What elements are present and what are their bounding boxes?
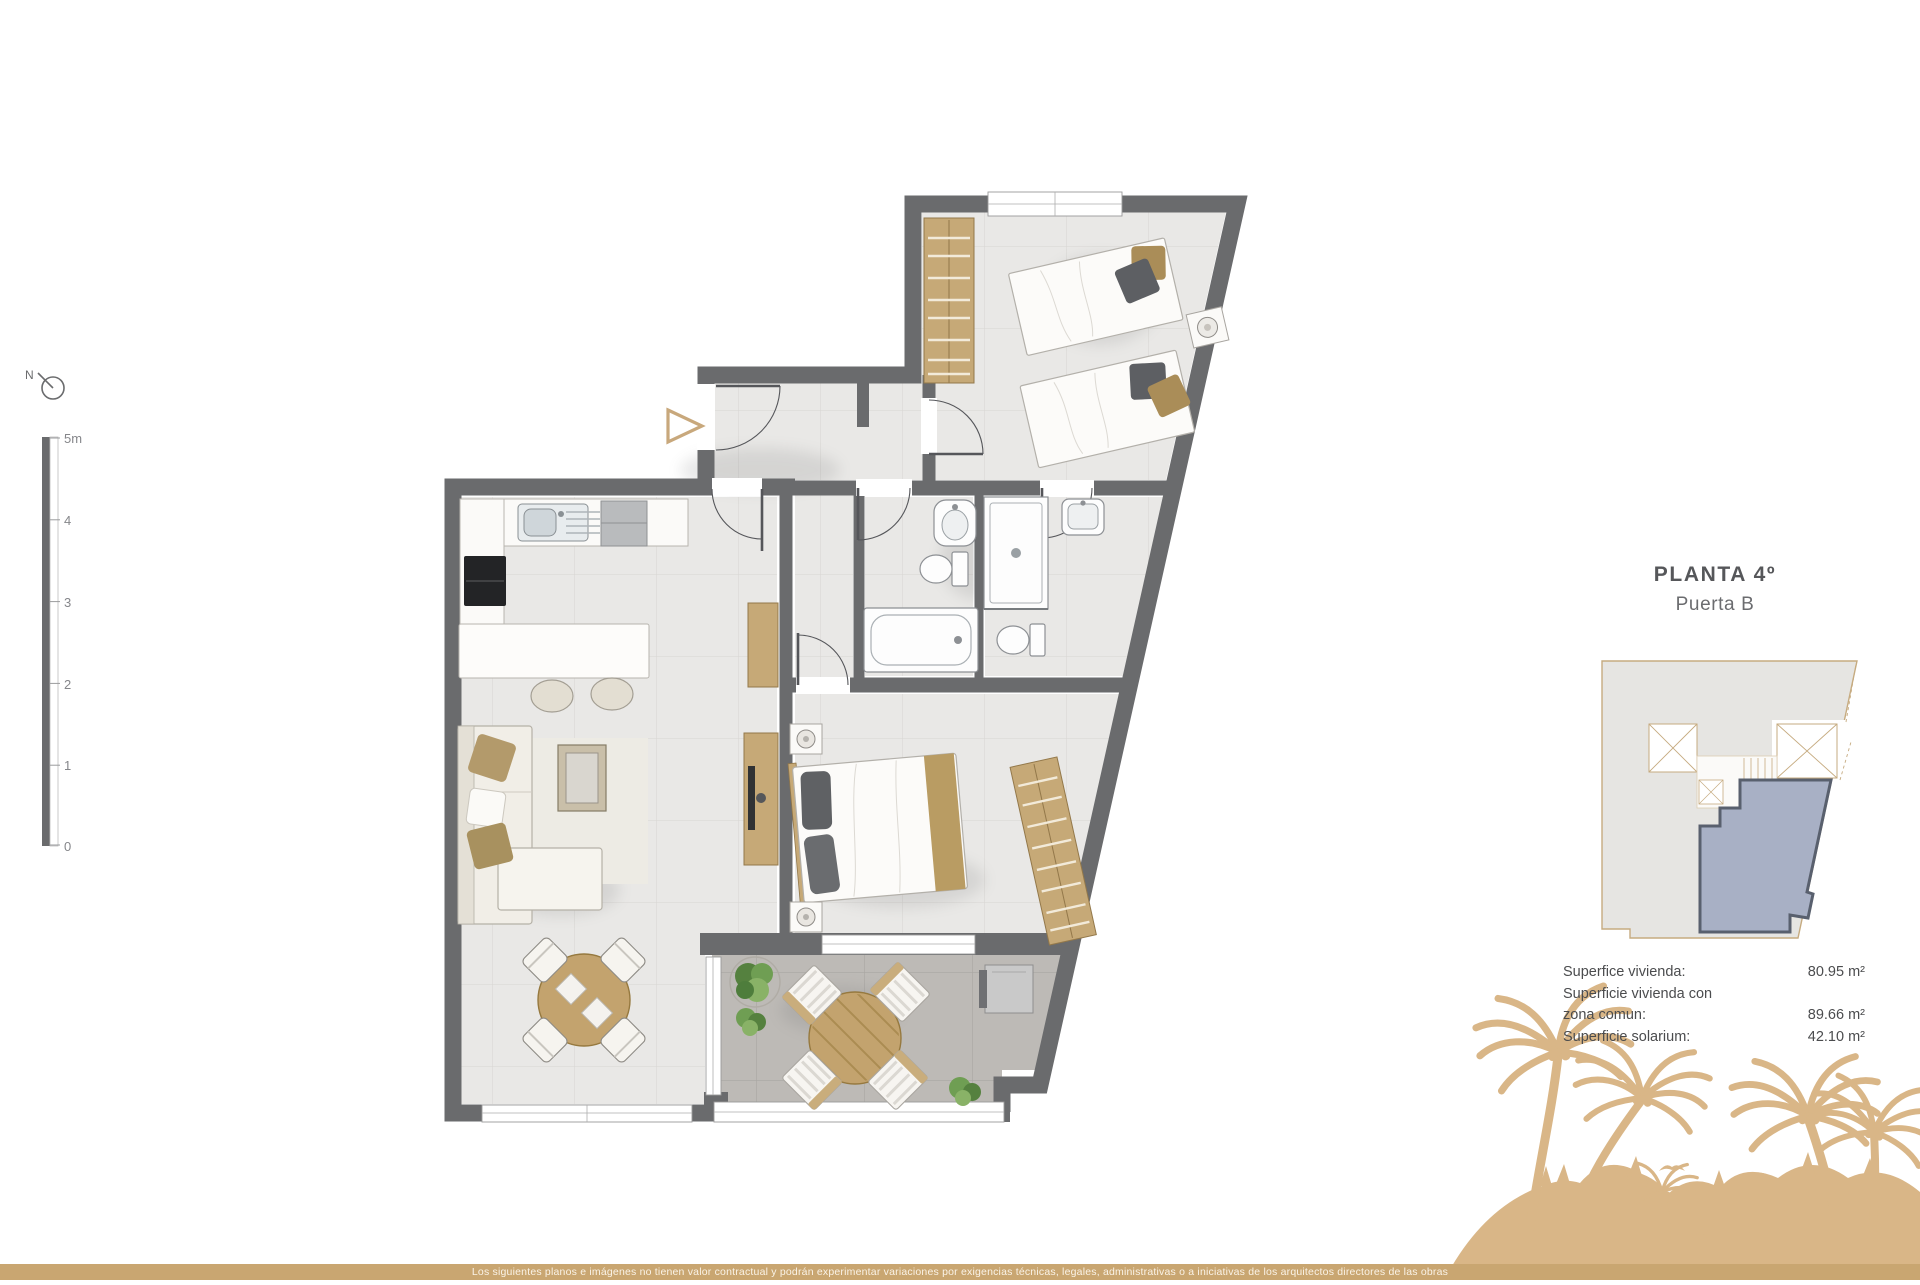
key-plan [1602, 661, 1857, 938]
pillow-dark [800, 771, 832, 830]
area-label: Superfice vivienda: [1563, 962, 1686, 984]
area-value: 80.95 m² [1808, 962, 1865, 984]
area-row: Superficie solarium: 42.10 m² [1563, 1027, 1865, 1049]
scale-bar: 5m 4 3 2 1 0 [42, 431, 82, 854]
toilet-icon [997, 624, 1045, 656]
washbasin-icon [934, 500, 976, 546]
ac-unit [979, 965, 1033, 1013]
scale-label-4: 4 [64, 513, 71, 528]
sofa-pillow-white [466, 788, 507, 829]
scale-label-5m: 5m [64, 431, 82, 446]
floorplan-page: N 5m 4 3 2 1 0 [0, 0, 1920, 1280]
coffee-table [558, 745, 606, 811]
north-indicator: N [25, 368, 64, 399]
disclaimer-bar: Los siguientes planos e imágenes no tien… [0, 1264, 1920, 1280]
scale-label-2: 2 [64, 677, 71, 692]
window-bedroom-terrace [822, 935, 975, 954]
scale-label-3: 3 [64, 595, 71, 610]
window-top-bedroom [988, 192, 1122, 216]
entrance-arrow-icon [668, 410, 702, 442]
kitchen-sink-icon [518, 504, 600, 541]
elevator-shaft-icon [1649, 724, 1697, 772]
scale-label-1: 1 [64, 758, 71, 773]
corridor-floor [795, 489, 853, 685]
page-subtitle: Puerta B [1545, 594, 1885, 616]
area-value: 42.10 m² [1808, 1027, 1865, 1049]
area-label: zona comun: [1563, 1005, 1646, 1027]
washbasin-icon [1062, 499, 1104, 535]
toilet-icon [920, 552, 968, 586]
kitchen-island [459, 624, 649, 678]
area-row: zona comun: 89.66 m² [1563, 1005, 1865, 1027]
area-label: Superficie vivienda con [1563, 984, 1712, 1006]
north-label: N [25, 368, 34, 382]
nightstand [790, 902, 822, 932]
area-row: Superficie vivienda con [1563, 984, 1865, 1006]
plan-title-block: PLANTA 4º Puerta B [1545, 563, 1885, 616]
floor-plan-canvas: N 5m 4 3 2 1 0 [0, 0, 1920, 1280]
disclaimer-text: Los siguientes planos e imágenes no tien… [472, 1266, 1448, 1278]
area-row: Superfice vivienda: 80.95 m² [1563, 962, 1865, 984]
elevator-shaft-icon [1777, 724, 1837, 778]
shower-icon [984, 497, 1048, 609]
nightstand [790, 724, 822, 754]
top-wardrobe [924, 218, 974, 383]
area-summary: Superfice vivienda: 80.95 m² Superficie … [1563, 962, 1865, 1048]
tv-unit [744, 733, 778, 865]
nightstand [1186, 307, 1229, 348]
tv-icon [748, 766, 755, 830]
hall-console [748, 603, 778, 687]
bathtub-icon [864, 608, 978, 672]
page-title: PLANTA 4º [1545, 563, 1885, 587]
master-bed [788, 749, 968, 907]
chaise [498, 848, 602, 910]
glass-living-terrace [706, 957, 721, 1095]
area-value: 89.66 m² [1808, 1005, 1865, 1027]
window-living-south [482, 1105, 692, 1122]
scale-label-0: 0 [64, 839, 71, 854]
area-label: Superficie solarium: [1563, 1027, 1690, 1049]
island-mound [1452, 1165, 1920, 1266]
